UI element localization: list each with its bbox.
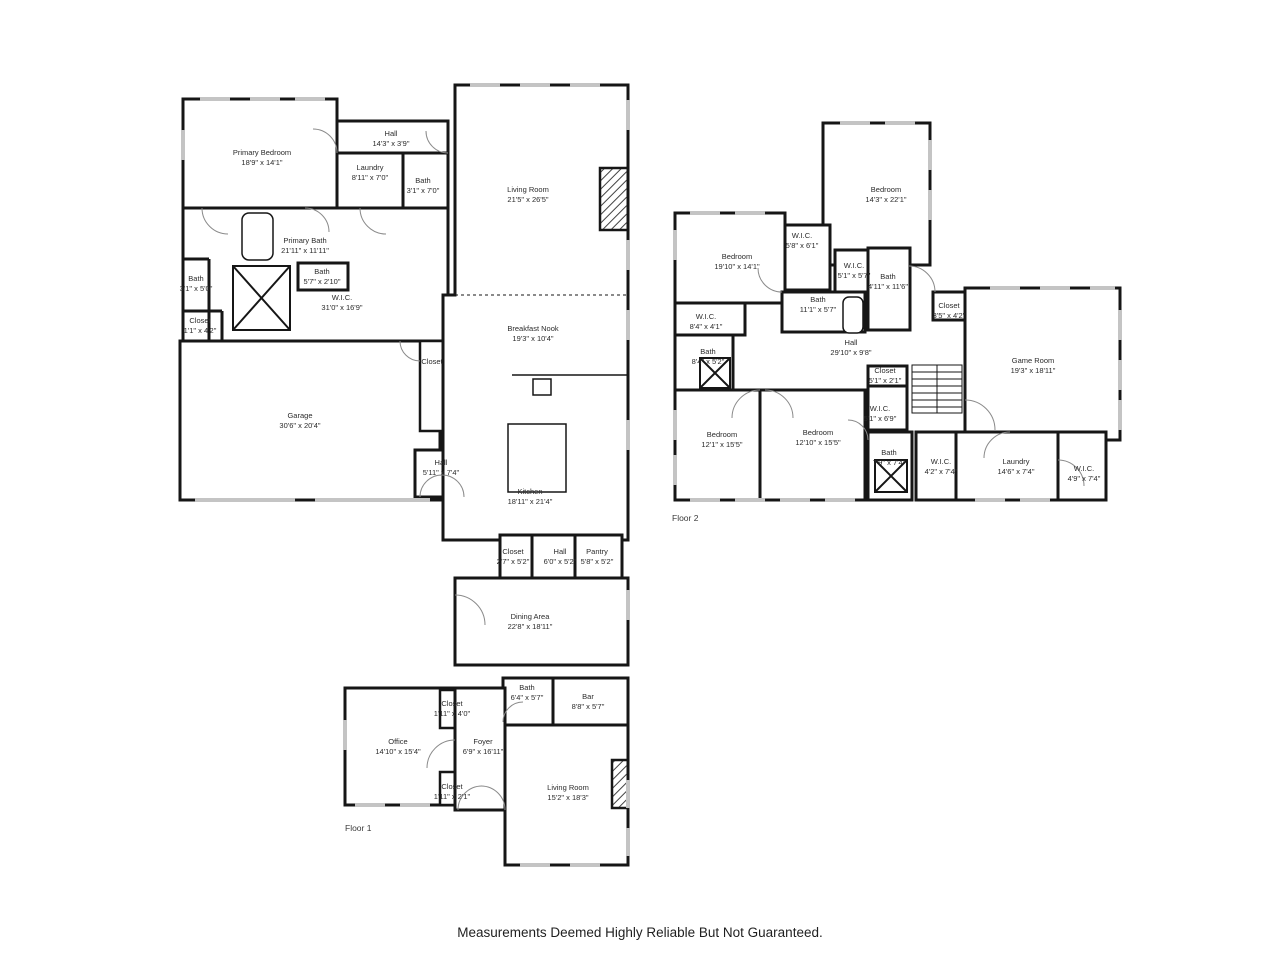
room-label: Hall5'11" x 7'4" [423, 458, 459, 478]
room-label: Breakfast Nook19'3" x 10'4" [507, 324, 558, 344]
room-label: Living Room21'5" x 26'5" [507, 185, 549, 205]
floor1-label: Floor 1 [345, 823, 371, 833]
room-label: W.I.C.5'1" x 6'9" [864, 404, 897, 424]
room-label: Bath4'11" x 11'6" [868, 272, 908, 292]
room-label: Closet1'1" x 4'2" [184, 316, 217, 336]
room-label: Bath11'1" x 5'7" [800, 295, 836, 315]
room-label: Hall29'10" x 9'8" [830, 338, 871, 358]
room-label: Closet5'1" x 2'1" [869, 366, 902, 386]
room-label: W.I.C.4'9" x 7'4" [1068, 464, 1101, 484]
room-label: Bath5'7" x 2'10" [304, 267, 341, 287]
room-label: Primary Bedroom18'9" x 14'1" [233, 148, 291, 168]
room-label: Bedroom14'3" x 22'1" [865, 185, 906, 205]
room-label: Laundry14'6" x 7'4" [998, 457, 1035, 477]
room-label: Living Room15'2" x 18'3" [547, 783, 589, 803]
room-label: Bath7'9" x 7'4" [873, 448, 906, 468]
room-label: Hall14'3" x 3'9" [373, 129, 410, 149]
room-label: Primary Bath21'11" x 11'11" [281, 236, 329, 256]
room-label: Closet3'5" x 4'2" [933, 301, 966, 321]
disclaimer-caption: Measurements Deemed Highly Reliable But … [0, 925, 1280, 940]
room-label: W.I.C.31'0" x 16'9" [321, 293, 362, 313]
room-label: Bath6'4" x 5'7" [511, 683, 544, 703]
room-label: W.I.C.4'2" x 7'4" [925, 457, 958, 477]
room-label: Bath3'1" x 5'0" [180, 274, 213, 294]
room-label: Kitchen18'11" x 21'4" [508, 487, 553, 507]
room-label: Pantry5'8" x 5'2" [581, 547, 614, 567]
room-label: Office14'10" x 15'4" [375, 737, 420, 757]
room-label: W.I.C.5'1" x 5'7" [838, 261, 871, 281]
room-label: Dining Area22'8" x 18'11" [508, 612, 553, 632]
room-label: Bedroom12'1" x 15'5" [701, 430, 742, 450]
room-label: Laundry8'11" x 7'0" [352, 163, 388, 183]
room-label: Foyer6'9" x 16'11" [463, 737, 504, 757]
room-label: Closet1'11" x 4'0" [434, 699, 470, 719]
room-label: Game Room19'3" x 18'11" [1011, 356, 1056, 376]
room-label: Garage30'6" x 20'4" [279, 411, 320, 431]
floor2-label: Floor 2 [672, 513, 698, 523]
room-label: W.I.C.5'8" x 6'1" [786, 231, 819, 251]
room-label: W.I.C.8'4" x 4'1" [690, 312, 723, 332]
room-label: Closet [421, 357, 442, 367]
floorplan-page: Primary Bedroom18'9" x 14'1"Hall14'3" x … [0, 0, 1280, 960]
room-label: Hall6'0" x 5'2" [544, 547, 577, 567]
room-label: Closet1'11" x 2'1" [434, 782, 470, 802]
room-label: Bath3'1" x 7'0" [407, 176, 440, 196]
room-label: Bath8'4" x 5'2" [692, 347, 725, 367]
room-label: Bedroom12'10" x 15'5" [795, 428, 840, 448]
room-label: Bar8'8" x 5'7" [572, 692, 605, 712]
room-label: Closet2'7" x 5'2" [497, 547, 530, 567]
room-label: Bedroom19'10" x 14'1" [714, 252, 759, 272]
